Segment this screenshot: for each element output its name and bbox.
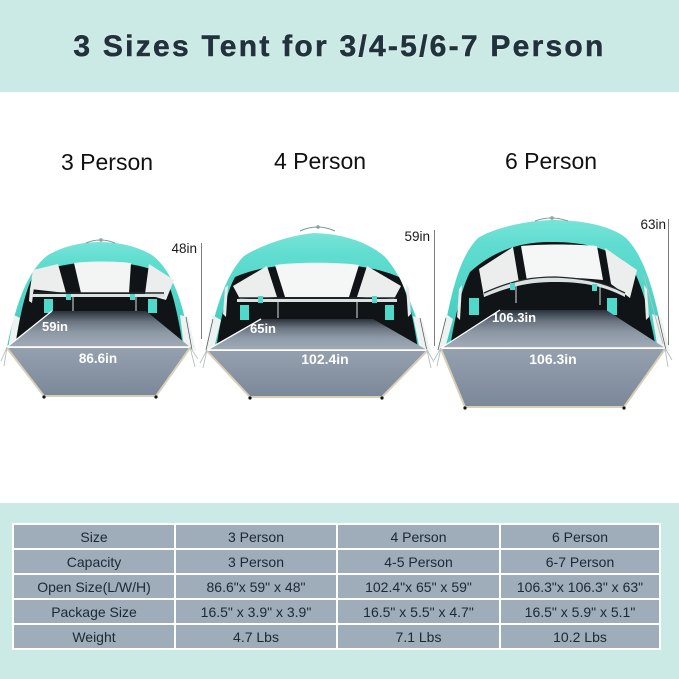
svg-text:63in: 63in xyxy=(640,217,666,232)
svg-text:59in: 59in xyxy=(404,229,430,244)
svg-text:59in: 59in xyxy=(42,319,68,334)
svg-text:106.3in: 106.3in xyxy=(492,310,536,325)
svg-text:3 Person: 3 Person xyxy=(61,149,153,175)
svg-text:4 Person: 4 Person xyxy=(274,148,366,174)
svg-text:6 Person: 6 Person xyxy=(505,148,597,174)
svg-text:48in: 48in xyxy=(171,241,197,256)
svg-text:65in: 65in xyxy=(250,321,276,336)
svg-text:102.4in: 102.4in xyxy=(301,351,348,367)
svg-text:86.6in: 86.6in xyxy=(79,351,117,366)
svg-text:106.3in: 106.3in xyxy=(529,351,576,367)
